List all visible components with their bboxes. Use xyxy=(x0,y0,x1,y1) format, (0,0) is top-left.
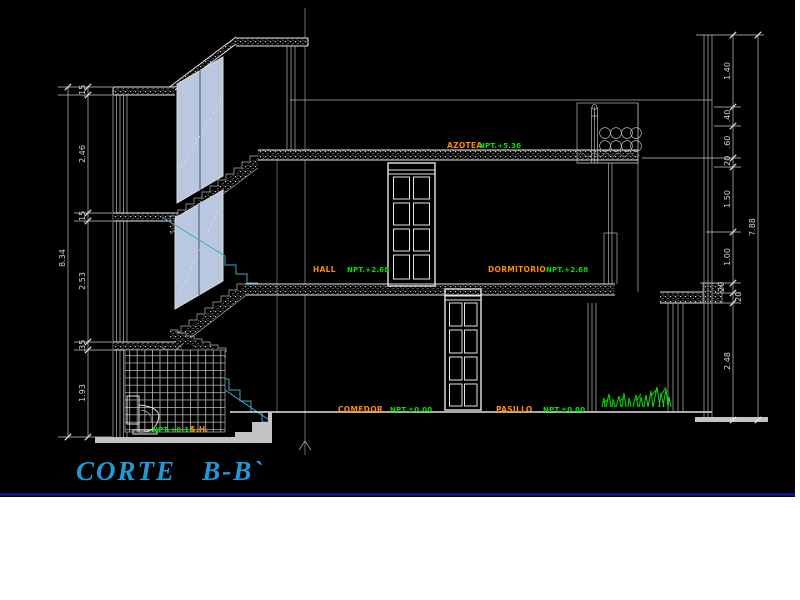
room-label-dormitorio: DORMITORIO xyxy=(488,265,546,274)
paper-area xyxy=(0,497,800,600)
dim-right-6: .20 xyxy=(717,282,726,295)
level-pasillo: NPT.±0.00 xyxy=(543,406,585,414)
level-dormitorio: NPT.+2.68 xyxy=(546,266,588,274)
dim-right-0: 1.40 xyxy=(723,62,732,80)
dim-left-0: .15 xyxy=(78,85,87,98)
level-hall: NPT.+2.68 xyxy=(347,266,389,274)
azotea-floor-slab xyxy=(258,150,638,160)
room-label-pasillo: PASILLO xyxy=(496,405,533,414)
bathroom-tiled-wall xyxy=(125,350,225,432)
dim-left-1: 2.46 xyxy=(78,145,87,163)
dim-left-total: 8.34 xyxy=(58,249,67,267)
dim-left-3: 2.53 xyxy=(78,272,87,290)
dim-right-5: 1.00 xyxy=(723,248,732,266)
dim-right-total: 7.88 xyxy=(748,218,757,236)
level-azotea: NPT.+5.36 xyxy=(479,142,521,150)
cad-viewport: .15 2.46 .15 2.53 .35 1.93 8.34 1.40 . xyxy=(0,0,800,600)
dim-left-5: 1.93 xyxy=(78,384,87,402)
dim-right-3: .20 xyxy=(723,156,732,169)
room-label-comedor: COMEDOR xyxy=(338,405,383,414)
dim-left-4: .35 xyxy=(78,340,87,353)
dim-right-2: .60 xyxy=(723,136,732,149)
dim-right-8: 2.48 xyxy=(723,352,732,370)
drawing-title: CORTE B-B` xyxy=(76,456,264,486)
dim-right-7: .20 xyxy=(734,292,743,305)
viewport-right-margin xyxy=(795,0,800,497)
level-comedor: NPT.±0.00 xyxy=(390,406,432,414)
dim-right-1: .40 xyxy=(723,110,732,123)
room-label-azotea: AZOTEA xyxy=(447,141,482,150)
section-drawing: .15 2.46 .15 2.53 .35 1.93 8.34 1.40 . xyxy=(0,0,800,600)
dim-right-4: 1.50 xyxy=(723,190,732,208)
dim-left-2: .15 xyxy=(78,211,87,224)
room-label-hall: HALL xyxy=(313,265,336,274)
level-sh: NPT.+0.15 xyxy=(152,426,194,434)
room-label-sh: S.H. xyxy=(190,425,209,434)
